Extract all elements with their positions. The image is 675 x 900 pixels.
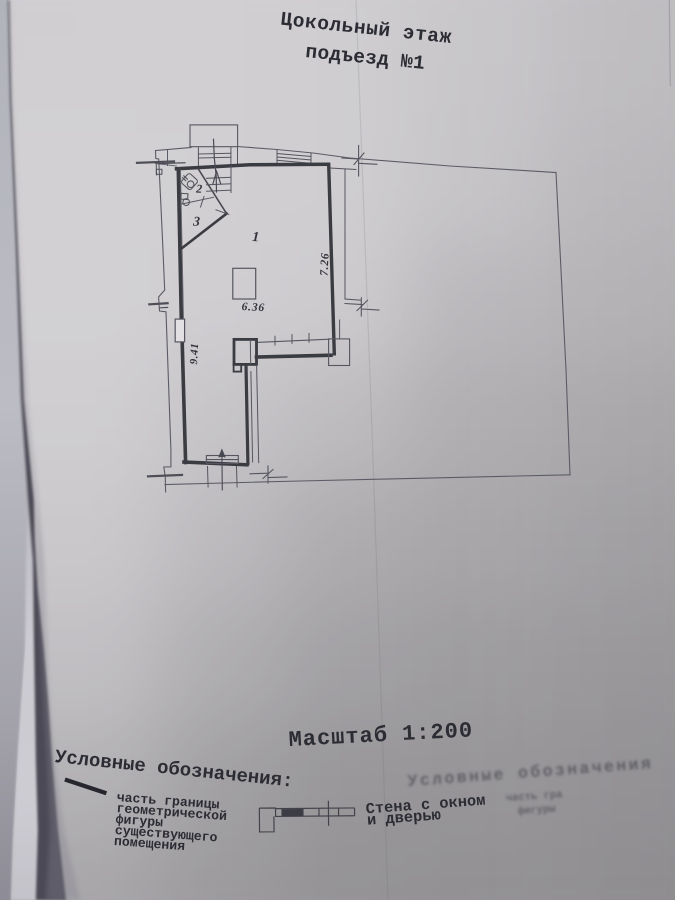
svg-text:3: 3 [192,213,201,228]
svg-text:9.41: 9.41 [188,342,201,364]
svg-text:7.26: 7.26 [319,252,332,276]
svg-text:6.36: 6.36 [241,301,265,314]
svg-text:фигуры: фигуры [517,802,556,818]
svg-text:1: 1 [252,230,260,245]
svg-text:2: 2 [195,181,203,195]
